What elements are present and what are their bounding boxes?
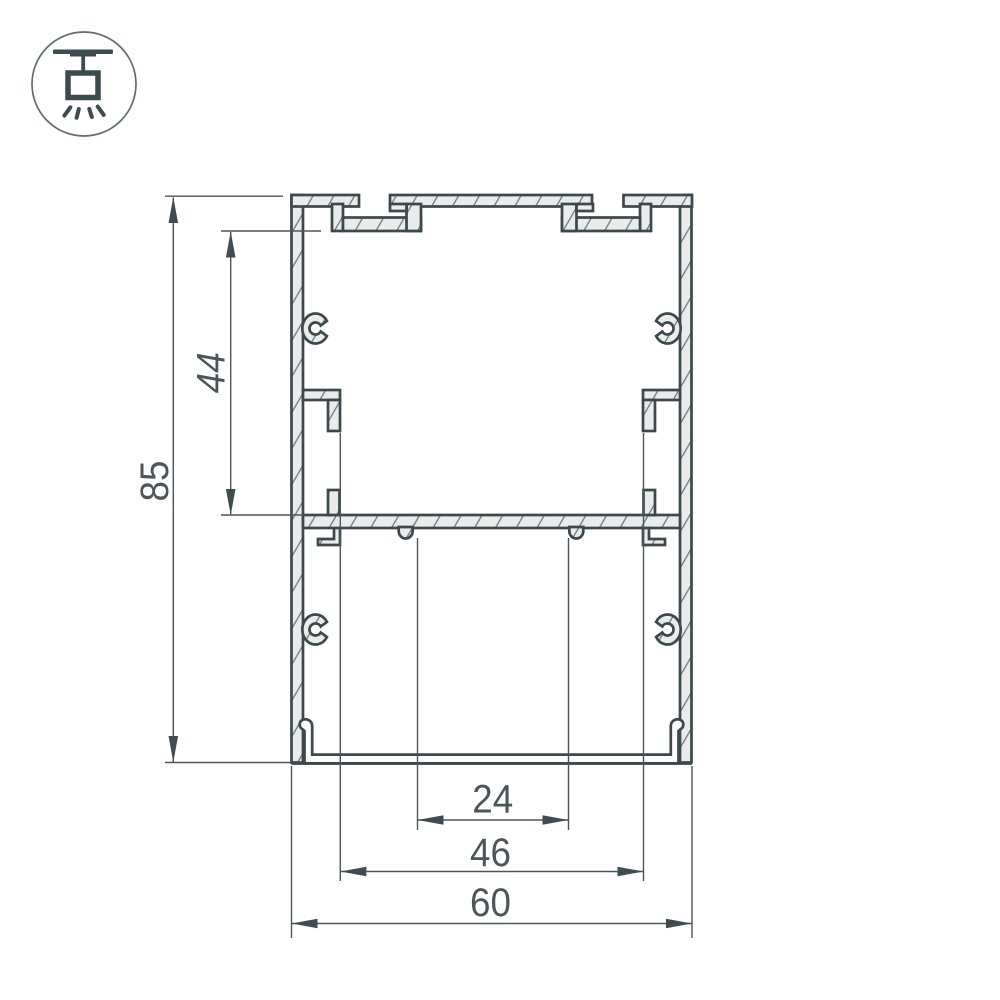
svg-text:85: 85 bbox=[133, 461, 178, 502]
svg-text:24: 24 bbox=[472, 777, 513, 822]
svg-text:60: 60 bbox=[470, 881, 511, 926]
svg-text:46: 46 bbox=[470, 831, 511, 876]
svg-text:44: 44 bbox=[189, 348, 233, 397]
